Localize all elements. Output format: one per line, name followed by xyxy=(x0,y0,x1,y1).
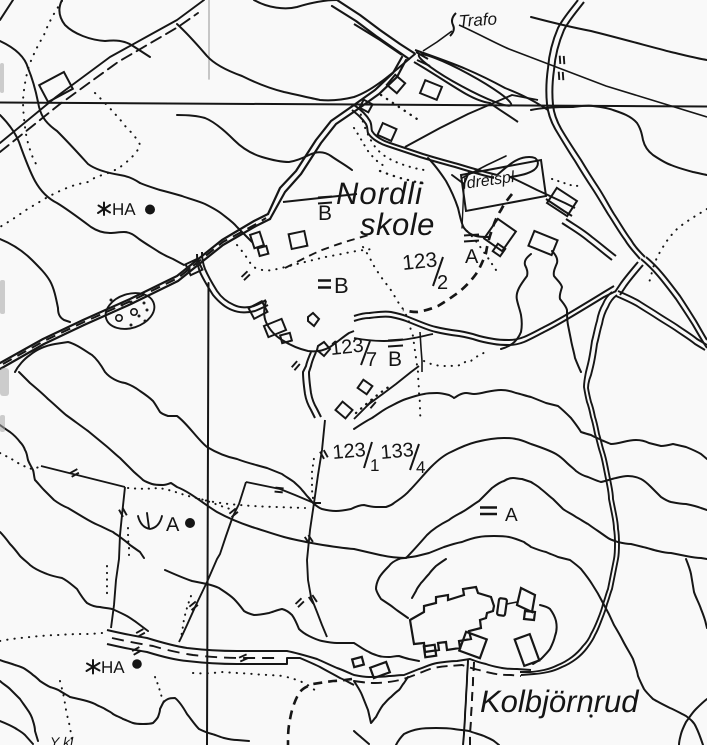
svg-text:HA: HA xyxy=(112,200,136,219)
svg-text:B: B xyxy=(318,202,332,225)
svg-text:A: A xyxy=(465,246,479,268)
svg-text:7: 7 xyxy=(366,349,377,371)
svg-text:B: B xyxy=(388,348,402,371)
svg-text:1: 1 xyxy=(370,456,379,475)
svg-text:Kolbjörnrud: Kolbjörnrud xyxy=(480,684,640,719)
svg-text:B: B xyxy=(334,273,349,298)
svg-text:123: 123 xyxy=(332,439,367,464)
svg-text:A: A xyxy=(505,505,518,526)
svg-text:123: 123 xyxy=(401,248,438,275)
svg-text:A: A xyxy=(166,514,180,536)
svg-text:123: 123 xyxy=(329,335,364,360)
svg-text:skole: skole xyxy=(360,207,435,242)
svg-text:133: 133 xyxy=(380,439,415,464)
svg-text:Nordli: Nordli xyxy=(336,176,423,211)
svg-text:HA: HA xyxy=(101,658,125,677)
svg-text:2: 2 xyxy=(437,272,448,294)
svg-text:Y kl: Y kl xyxy=(50,734,74,745)
svg-text:4: 4 xyxy=(416,458,425,477)
